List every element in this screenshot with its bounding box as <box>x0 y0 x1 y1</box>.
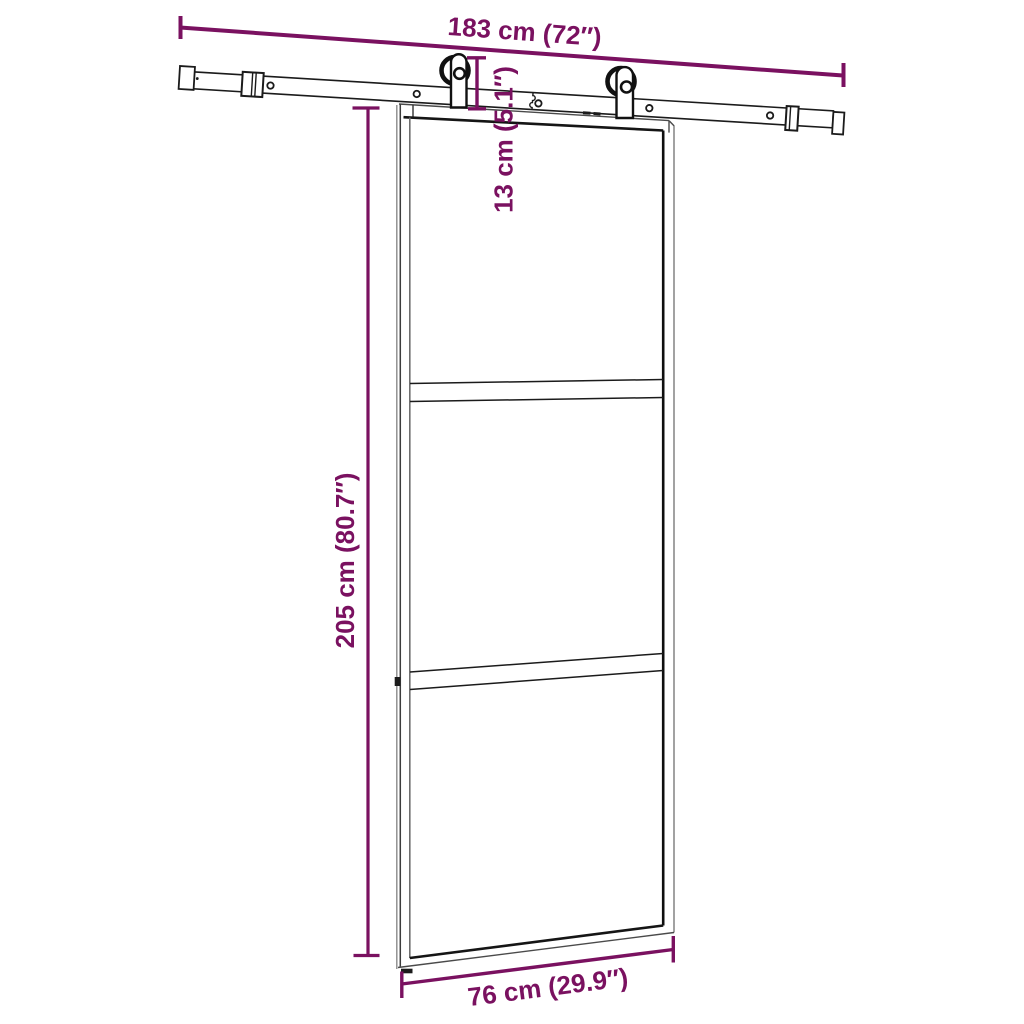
svg-text:13 cm (5.1″): 13 cm (5.1″) <box>489 66 519 213</box>
svg-text:205 cm (80.7″): 205 cm (80.7″) <box>330 473 360 649</box>
